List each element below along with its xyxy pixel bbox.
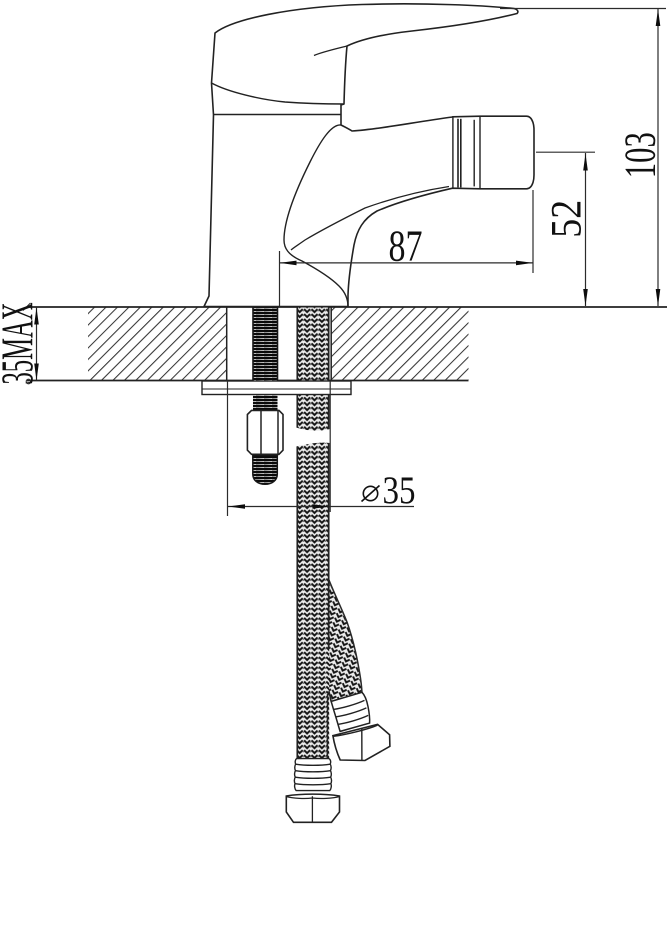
svg-text:52: 52 [544, 200, 591, 238]
svg-text:35: 35 [383, 469, 416, 512]
svg-text:35MAX: 35MAX [0, 303, 43, 385]
svg-text:103: 103 [616, 132, 665, 178]
svg-text:87: 87 [389, 221, 423, 270]
